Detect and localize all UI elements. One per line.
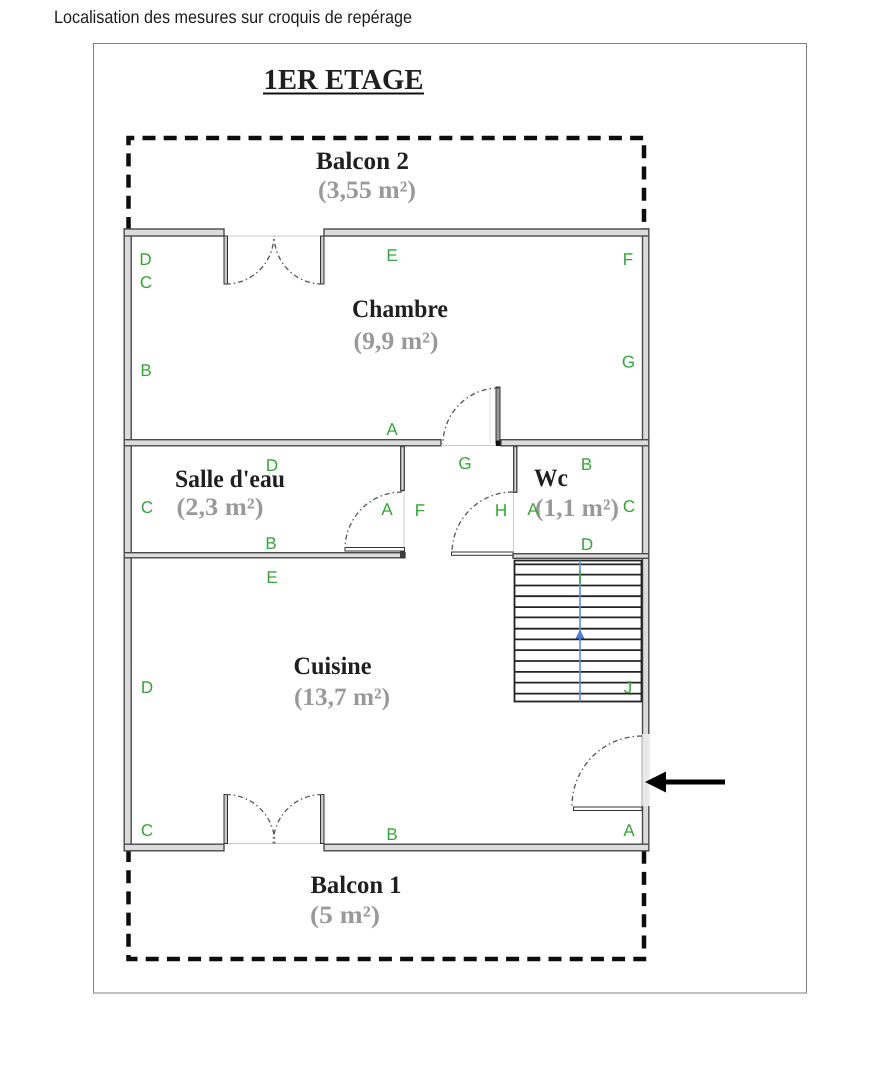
- svg-text:1ER ETAGE: 1ER ETAGE: [264, 64, 424, 96]
- svg-text:(1,1 m²): (1,1 m²): [535, 495, 619, 522]
- svg-text:Localisation des mesures sur c: Localisation des mesures sur croquis de …: [54, 7, 412, 27]
- svg-text:C: C: [141, 821, 153, 840]
- svg-text:E: E: [386, 246, 397, 265]
- svg-text:G: G: [622, 353, 635, 372]
- svg-text:(13,7 m²): (13,7 m²): [294, 684, 390, 711]
- svg-text:I: I: [578, 568, 583, 587]
- svg-text:Balcon 2: Balcon 2: [316, 148, 409, 175]
- svg-text:B: B: [386, 825, 397, 844]
- svg-text:Chambre: Chambre: [352, 296, 448, 323]
- svg-text:D: D: [581, 535, 593, 554]
- svg-text:Balcon 1: Balcon 1: [311, 872, 402, 899]
- svg-text:G: G: [458, 454, 471, 473]
- svg-text:B: B: [581, 455, 592, 474]
- svg-text:A: A: [386, 420, 398, 439]
- svg-text:B: B: [265, 534, 276, 553]
- svg-text:(9,9 m²): (9,9 m²): [354, 328, 439, 355]
- svg-text:Wc: Wc: [534, 465, 568, 492]
- svg-text:A: A: [623, 821, 635, 840]
- svg-text:C: C: [140, 273, 152, 292]
- svg-text:(2,3 m²): (2,3 m²): [177, 494, 264, 521]
- svg-text:D: D: [141, 678, 153, 697]
- svg-text:(3,55 m²): (3,55 m²): [318, 177, 416, 204]
- svg-text:C: C: [623, 497, 635, 516]
- svg-text:A: A: [381, 500, 393, 519]
- svg-text:J: J: [624, 678, 633, 697]
- svg-text:E: E: [266, 568, 277, 587]
- svg-text:D: D: [266, 456, 278, 475]
- svg-text:C: C: [141, 498, 153, 517]
- svg-text:Cuisine: Cuisine: [294, 653, 372, 680]
- svg-text:B: B: [140, 361, 151, 380]
- svg-text:A: A: [527, 500, 539, 519]
- svg-text:F: F: [415, 501, 425, 520]
- svg-text:F: F: [623, 250, 633, 269]
- svg-text:(5 m²): (5 m²): [310, 902, 380, 929]
- svg-text:H: H: [495, 501, 507, 520]
- svg-text:D: D: [139, 250, 151, 269]
